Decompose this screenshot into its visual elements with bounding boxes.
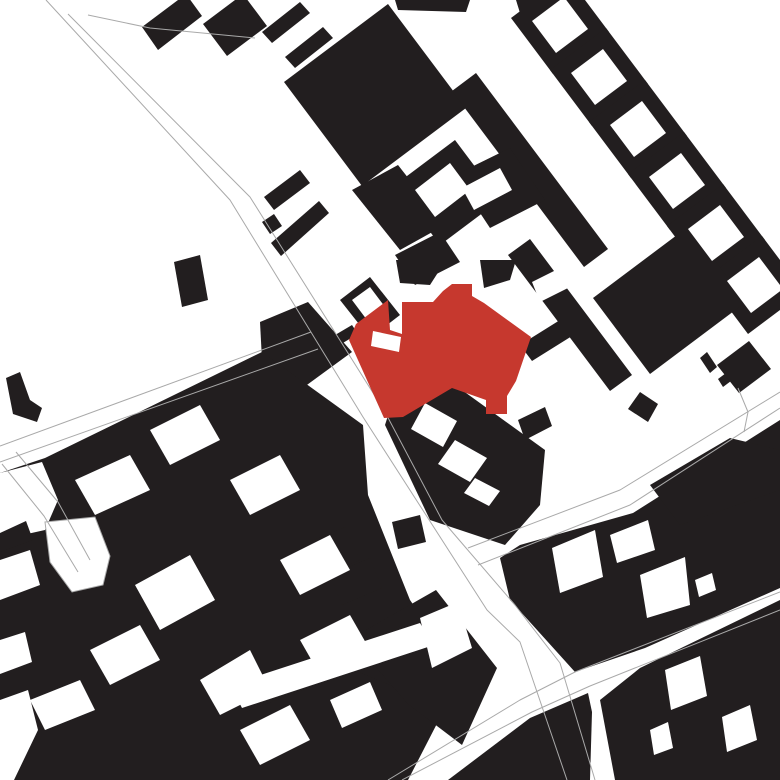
figure-ground-map	[0, 0, 780, 780]
building-footprint	[395, 0, 470, 12]
site-plan-canvas	[0, 0, 780, 780]
